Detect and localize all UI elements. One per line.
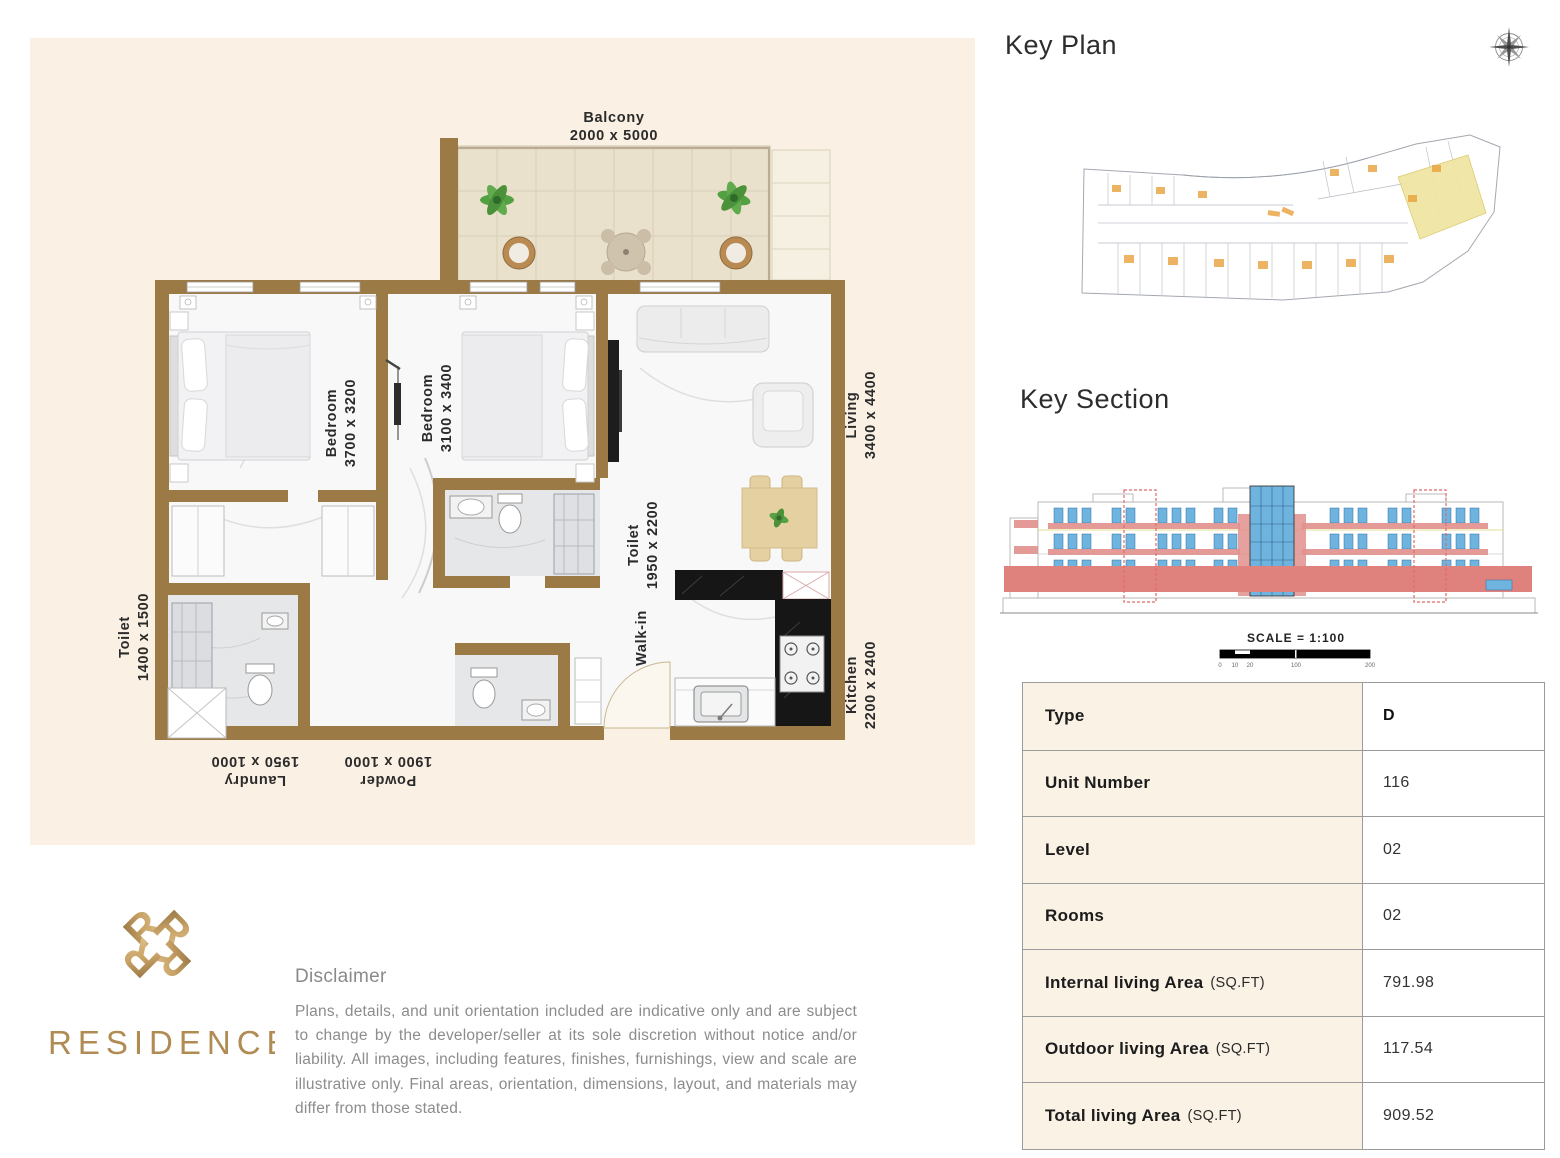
label-laundry: Laundry [224, 772, 286, 788]
label-kitchen: Kitchen [844, 656, 860, 714]
logo-pinwheel: R R R R [113, 900, 200, 987]
row-label: Internal living Area(SQ.FT) [1023, 950, 1363, 1016]
floor-plan-panel: Balcony 2000 x 5000 Bedroom 3700 x 3200 … [30, 38, 975, 845]
row-value: 02 [1363, 884, 1544, 950]
bed [170, 312, 310, 482]
svg-text:3100 x 3400: 3100 x 3400 [439, 364, 455, 452]
svg-text:1950 x 2200: 1950 x 2200 [645, 501, 661, 589]
row-label: Type [1023, 683, 1363, 750]
table-row: Internal living Area(SQ.FT) 791.98 [1023, 949, 1544, 1016]
row-value: 02 [1363, 817, 1544, 883]
svg-text:100: 100 [1291, 663, 1302, 669]
svg-text:3700 x 3200: 3700 x 3200 [343, 379, 359, 467]
label-toilet-small: Toilet [117, 616, 133, 658]
unit-info-table: Type D Unit Number 116 Level 02 Rooms 02… [1022, 682, 1545, 1150]
label-bedroom1: Bedroom [324, 389, 340, 458]
tv-unit [608, 340, 619, 462]
row-value: 909.52 [1363, 1083, 1544, 1149]
label-toilet-ensuite: Toilet [626, 524, 642, 566]
svg-text:1400 x 1500: 1400 x 1500 [136, 593, 152, 681]
row-label: Total living Area(SQ.FT) [1023, 1083, 1363, 1149]
scale-bar: SCALE = 1:100 0 10 20 100 200 [1208, 628, 1388, 674]
row-label: Level [1023, 817, 1363, 883]
svg-text:200: 200 [1365, 663, 1376, 669]
row-value: 116 [1363, 751, 1544, 817]
row-label: Rooms [1023, 884, 1363, 950]
compass-icon [1486, 24, 1532, 70]
row-label: Unit Number [1023, 751, 1363, 817]
table-row: Type D [1023, 683, 1544, 750]
brand-name: RESIDENCE [48, 1024, 275, 1061]
residence-logo: R R R R RESIDENCE [40, 872, 275, 1077]
sofa [637, 306, 769, 352]
label-powder: Powder [360, 772, 417, 788]
floor-plan-drawing: Balcony 2000 x 5000 Bedroom 3700 x 3200 … [30, 38, 975, 845]
powder-room [455, 655, 558, 726]
row-value: D [1363, 683, 1544, 750]
row-value: 791.98 [1363, 950, 1544, 1016]
laundry-niche [168, 688, 226, 738]
row-value: 117.54 [1363, 1017, 1544, 1083]
bathroom-ensuite [445, 490, 600, 576]
key-plan-title: Key Plan [1005, 30, 1117, 61]
brochure-page: Balcony 2000 x 5000 Bedroom 3700 x 3200 … [0, 0, 1560, 1158]
section-podium-band [1004, 566, 1532, 592]
table-row: Unit Number 116 [1023, 750, 1544, 817]
svg-text:10: 10 [1232, 663, 1239, 669]
table-row: Total living Area(SQ.FT) 909.52 [1023, 1082, 1544, 1149]
armchair [753, 383, 813, 447]
key-section-title: Key Section [1020, 384, 1170, 415]
key-plan-drawing [1068, 95, 1520, 341]
svg-text:1950 x 1000: 1950 x 1000 [211, 753, 299, 769]
label-walk-in: Walk-in [634, 610, 650, 666]
svg-text:0: 0 [1218, 663, 1222, 669]
label-balcony: Balcony [583, 110, 644, 126]
disclaimer-heading: Disclaimer [295, 966, 857, 988]
row-label: Outdoor living Area(SQ.FT) [1023, 1017, 1363, 1083]
svg-text:2200 x 2400: 2200 x 2400 [863, 641, 879, 729]
svg-text:1900 x 1000: 1900 x 1000 [344, 753, 432, 769]
table-row: Rooms 02 [1023, 883, 1544, 950]
label-bedroom2: Bedroom [420, 374, 436, 443]
dining-table [742, 476, 817, 561]
scale-label: SCALE = 1:100 [1247, 631, 1345, 645]
table-row: Level 02 [1023, 816, 1544, 883]
disclaimer-block: Disclaimer Plans, details, and unit orie… [295, 966, 857, 1121]
svg-text:2000 x 5000: 2000 x 5000 [570, 128, 658, 144]
key-section-drawing [998, 460, 1540, 630]
svg-text:20: 20 [1247, 663, 1254, 669]
label-living: Living [844, 392, 860, 439]
svg-text:3400 x 4400: 3400 x 4400 [863, 371, 879, 459]
table-row: Outdoor living Area(SQ.FT) 117.54 [1023, 1016, 1544, 1083]
disclaimer-body: Plans, details, and unit orientation inc… [295, 1000, 857, 1121]
bed [462, 312, 594, 482]
